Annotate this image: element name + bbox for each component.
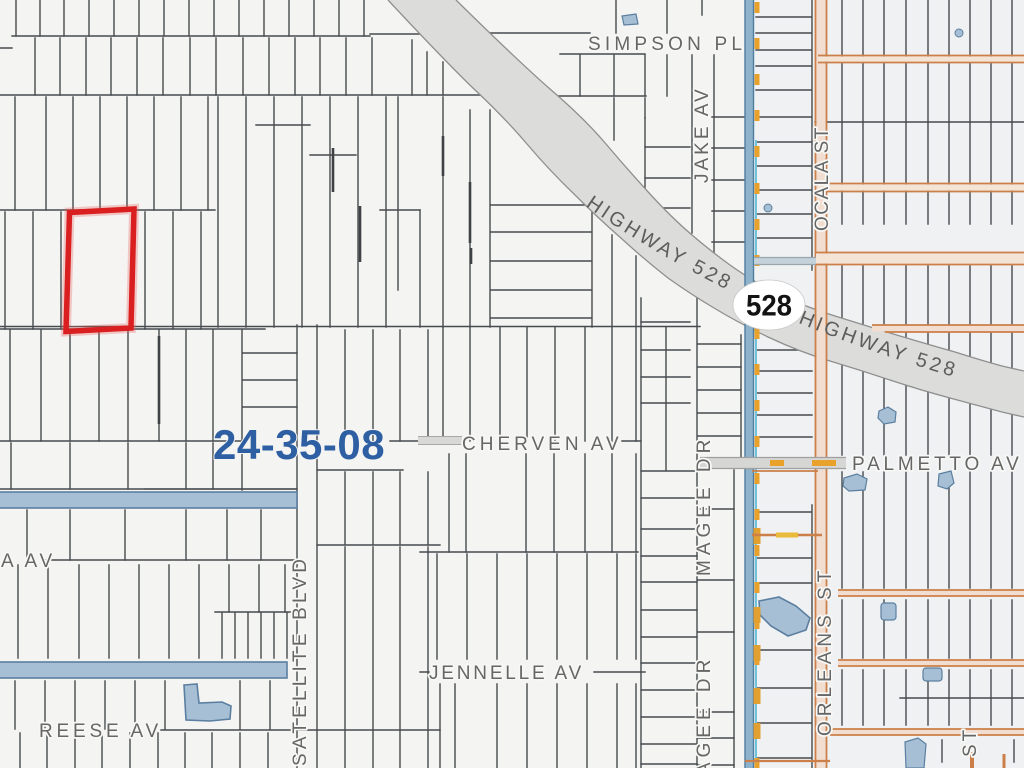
- svg-text:528: 528: [746, 290, 792, 323]
- svg-text:ST: ST: [960, 727, 981, 757]
- svg-text:MAGEE DR: MAGEE DR: [694, 435, 715, 576]
- svg-text:SIMPSON PL: SIMPSON PL: [588, 34, 746, 55]
- svg-text:CHERVEN AV: CHERVEN AV: [462, 434, 623, 455]
- svg-text:MAGEE DR: MAGEE DR: [694, 655, 715, 768]
- svg-text:24-35-08: 24-35-08: [213, 421, 385, 468]
- svg-text:JAKE AV: JAKE AV: [692, 86, 713, 183]
- svg-text:PALMETTO AV: PALMETTO AV: [852, 454, 1023, 475]
- svg-text:REESE AV: REESE AV: [39, 721, 162, 742]
- svg-text:A AV: A AV: [1, 551, 56, 572]
- svg-text:OCALA ST: OCALA ST: [812, 126, 833, 231]
- svg-text:SATELLITE BLVD: SATELLITE BLVD: [290, 555, 311, 766]
- svg-text:JENNELLE AV: JENNELLE AV: [429, 663, 584, 684]
- svg-text:ORLEANS ST: ORLEANS ST: [815, 566, 836, 736]
